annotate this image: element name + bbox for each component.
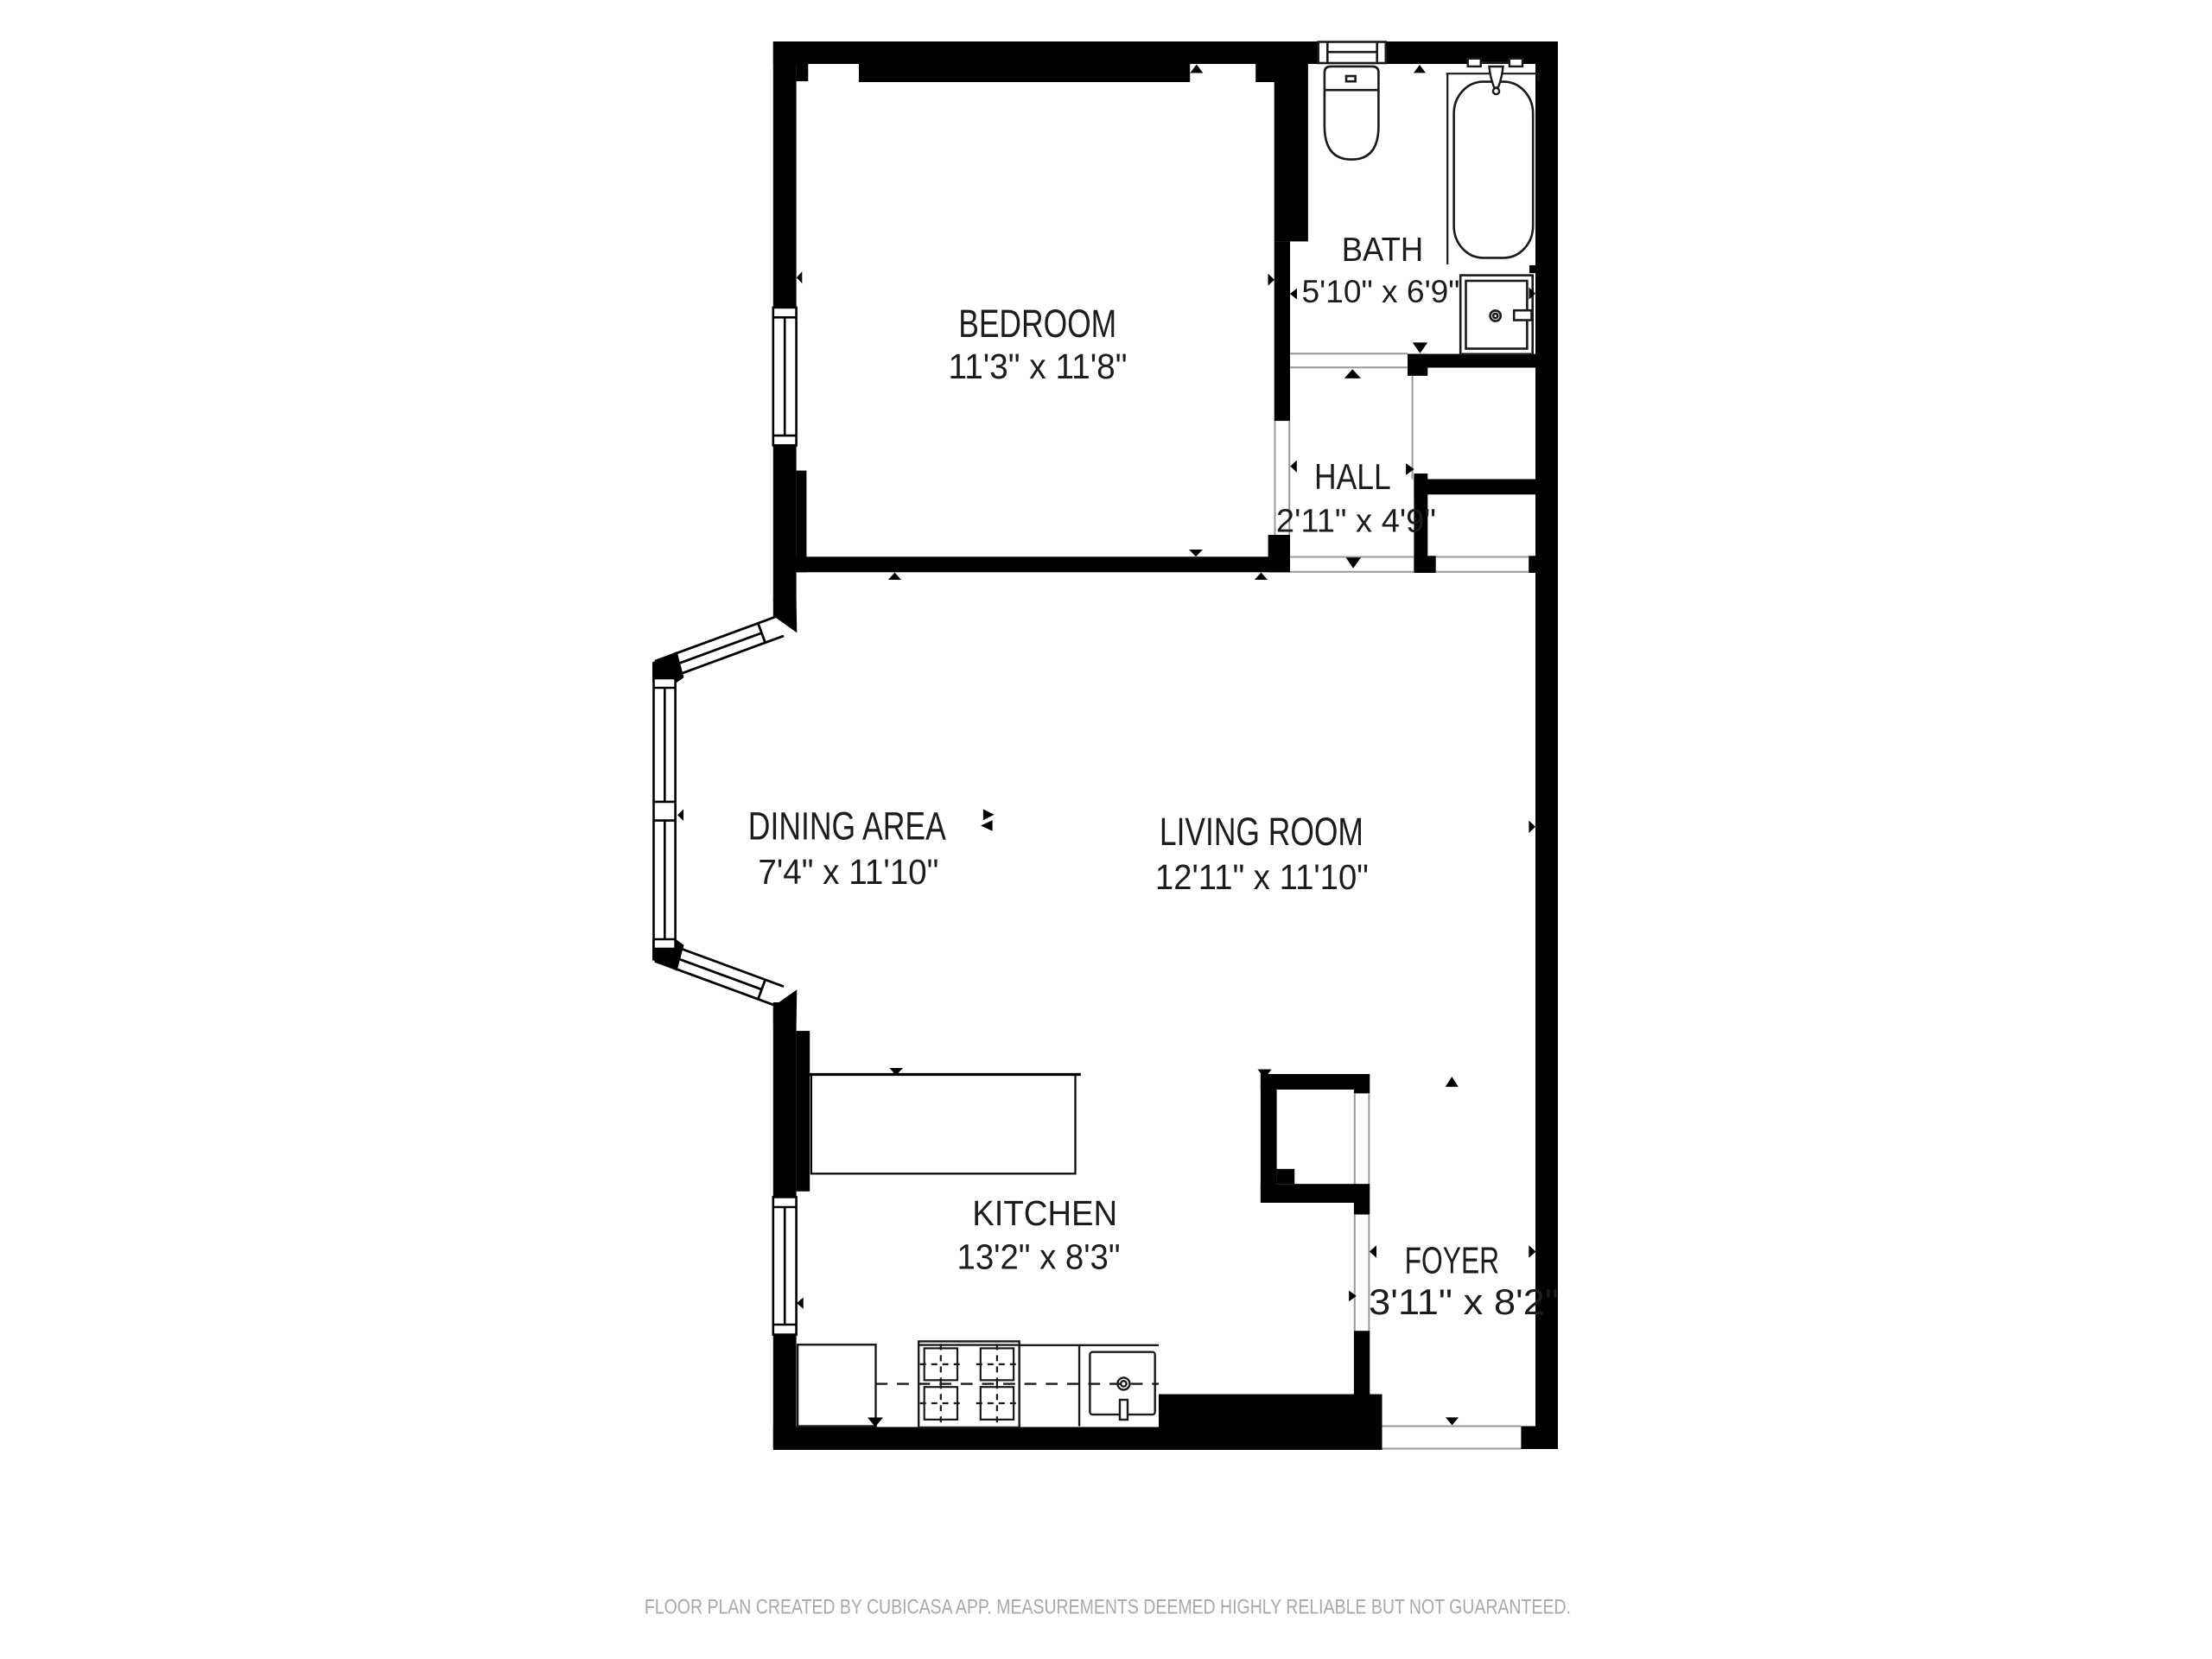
svg-text:HALL: HALL	[1314, 456, 1391, 497]
svg-text:5'10" x 6'9": 5'10" x 6'9"	[1302, 274, 1460, 309]
svg-text:13'2" x 8'3": 13'2" x 8'3"	[957, 1237, 1121, 1277]
svg-text:KITCHEN: KITCHEN	[972, 1193, 1117, 1233]
svg-text:BEDROOM: BEDROOM	[958, 302, 1116, 346]
svg-text:FOYER: FOYER	[1405, 1240, 1500, 1282]
svg-text:FLOOR PLAN CREATED BY CUBICASA: FLOOR PLAN CREATED BY CUBICASA APP. MEAS…	[645, 1596, 1571, 1619]
svg-text:12'11" x 11'10": 12'11" x 11'10"	[1155, 857, 1369, 897]
svg-text:7'4" x 11'10": 7'4" x 11'10"	[758, 852, 938, 892]
svg-text:DINING AREA: DINING AREA	[748, 804, 946, 849]
svg-text:LIVING ROOM: LIVING ROOM	[1160, 810, 1363, 854]
svg-text:BATH: BATH	[1342, 232, 1424, 269]
svg-text:2'11" x 4'9": 2'11" x 4'9"	[1276, 503, 1436, 539]
svg-text:11'3" x 11'8": 11'3" x 11'8"	[949, 346, 1128, 386]
svg-text:3'11" x 8'2": 3'11" x 8'2"	[1369, 1281, 1559, 1322]
